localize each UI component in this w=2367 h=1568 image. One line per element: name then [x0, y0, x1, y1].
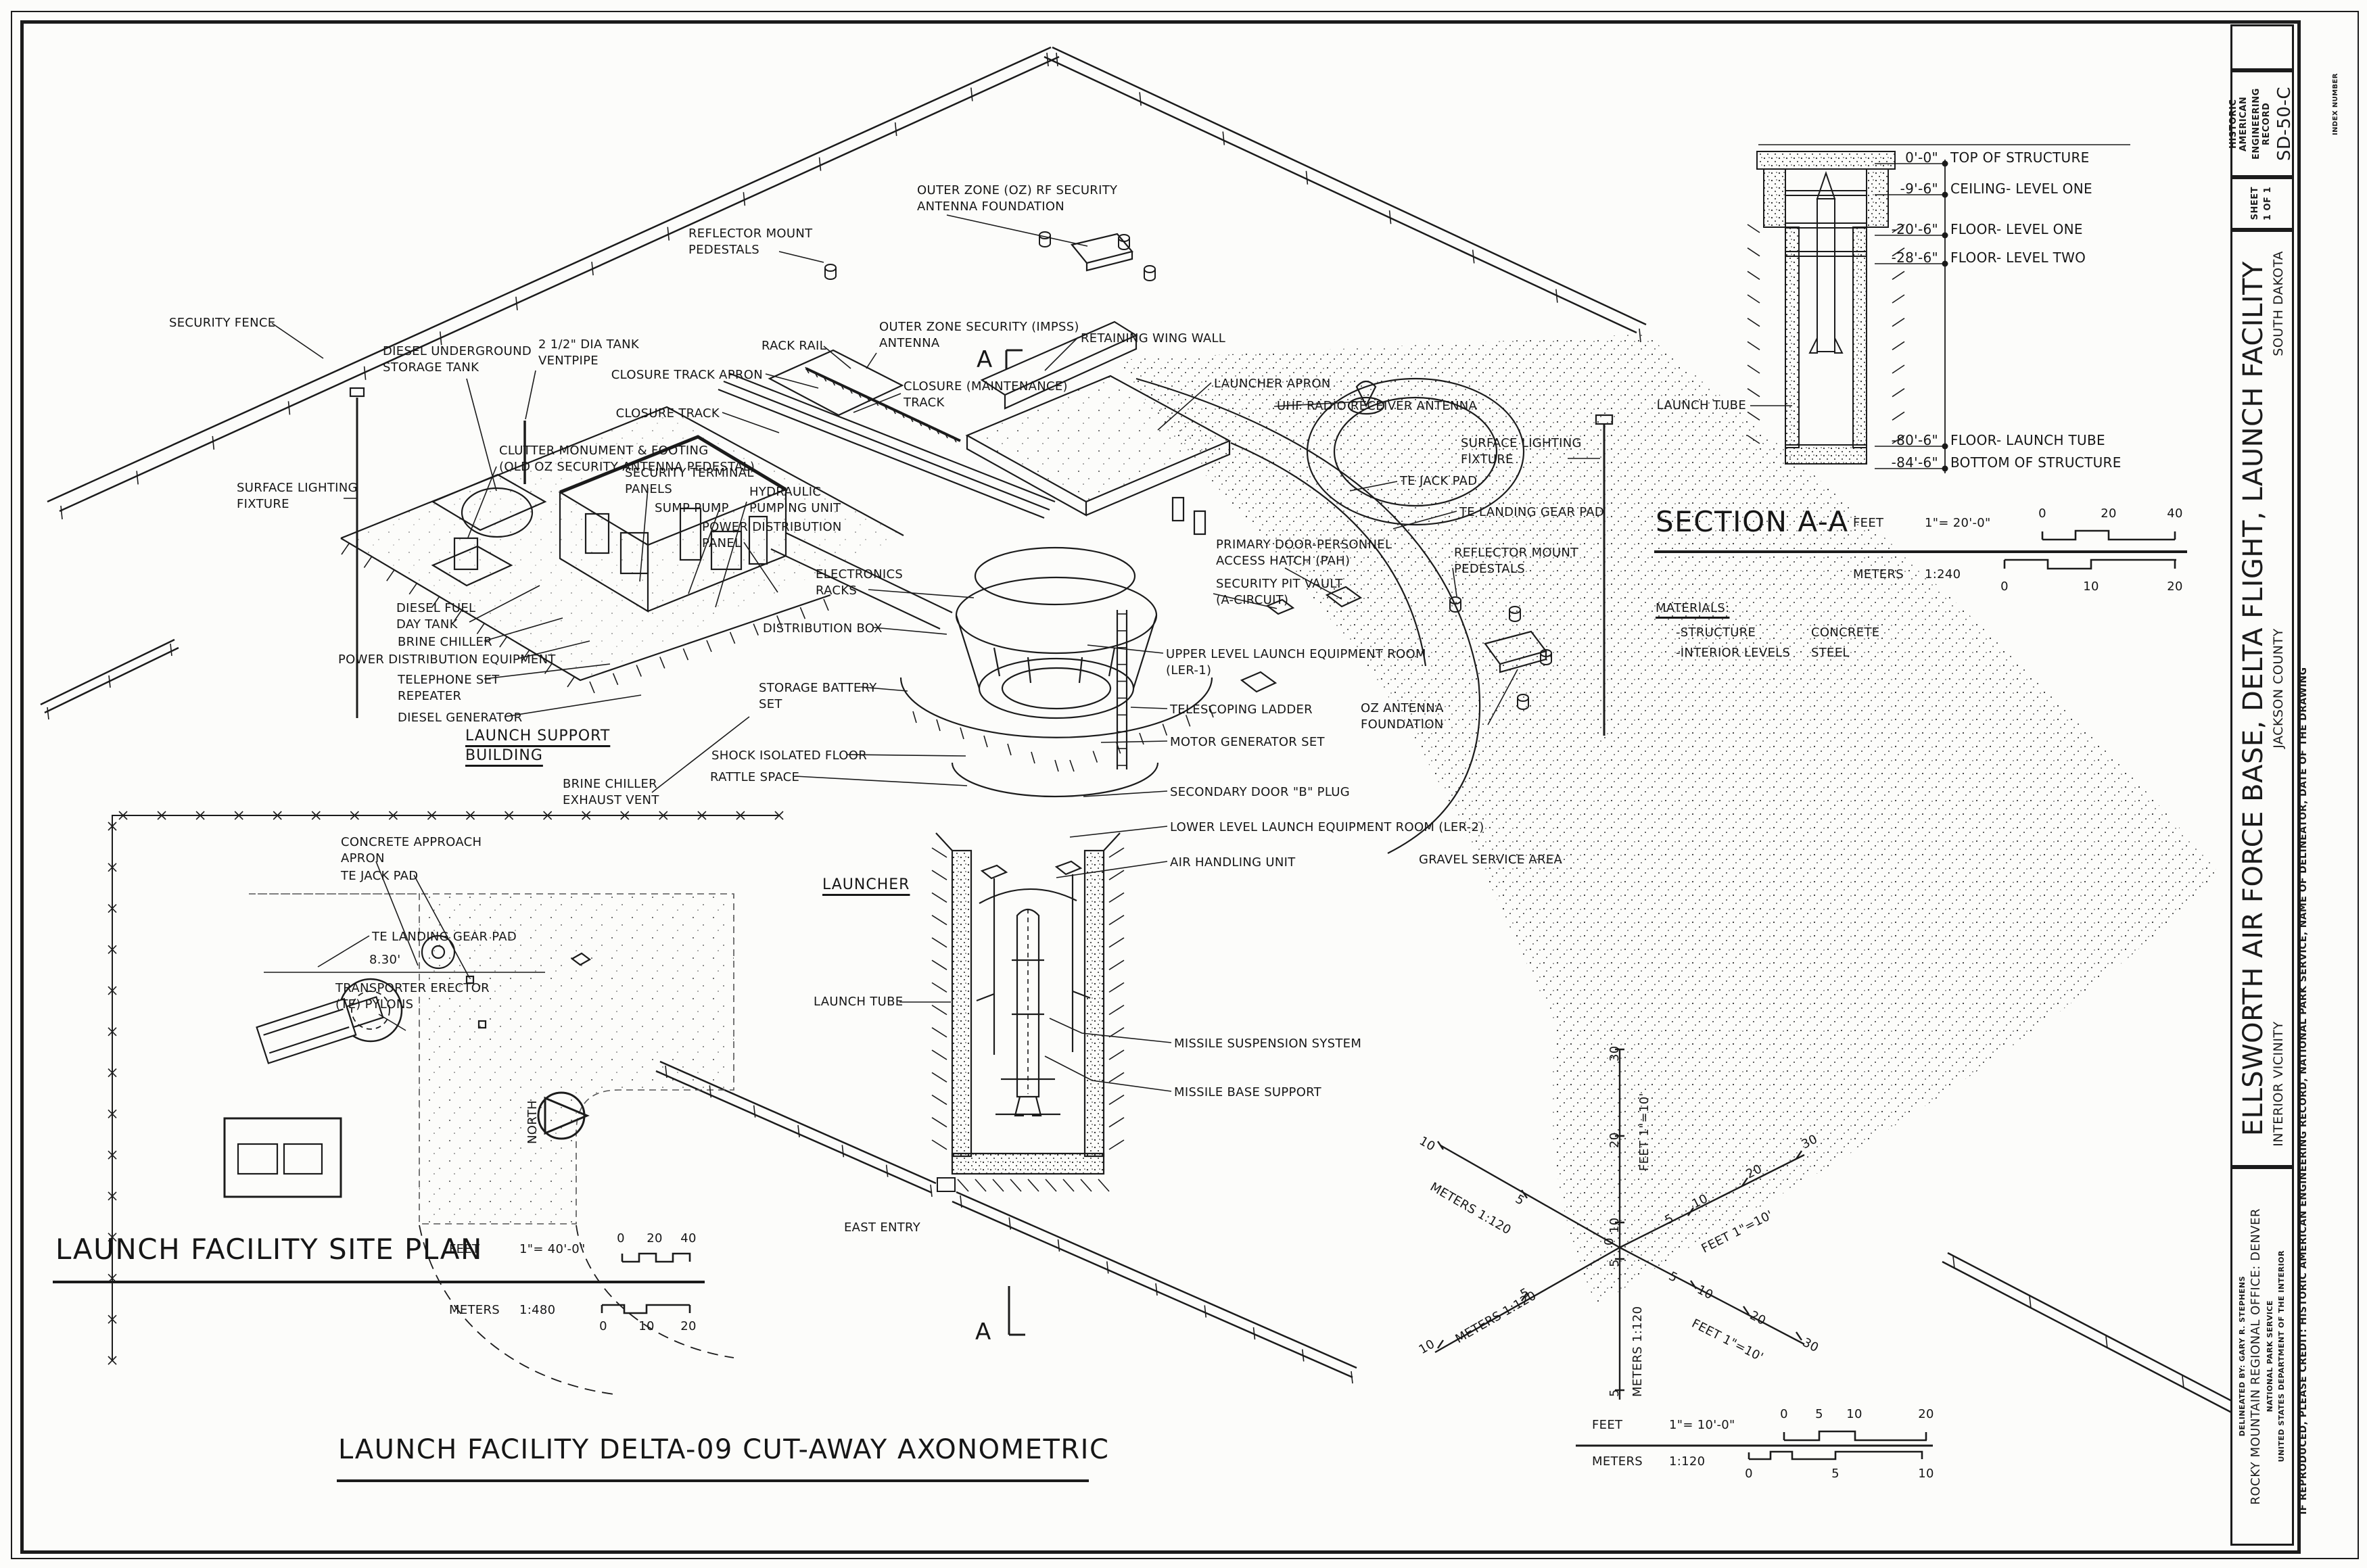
axon-title: LAUNCH FACILITY DELTA-09 CUT-AWAY AXONOM… [338, 1432, 1109, 1468]
telescoping-ladder: TELESCOPING LADDER [1170, 702, 1313, 718]
record-agency-line2: ENGINEERING RECORD [2252, 72, 2272, 175]
brine-chiller: BRINE CHILLER [398, 634, 492, 650]
diesel-underground-tank: DIESEL UNDERGROUND STORAGE TANK [383, 343, 532, 376]
closure-track: CLOSURE TRACK [616, 406, 720, 422]
sp-m10: 10 [638, 1318, 655, 1335]
agency-small: NATIONAL PARK SERVICE [2266, 1300, 2275, 1412]
elev-84-name: BOTTOM OF STRUCTURE [1950, 454, 2122, 471]
oz-antenna-foundation: OZ ANTENNA FOUNDATION [1361, 700, 1444, 733]
missile-suspension: MISSILE SUSPENSION SYSTEM [1174, 1036, 1361, 1052]
materials-title: MATERIALS: [1656, 600, 1729, 617]
sp-f0: 0 [617, 1231, 625, 1247]
oz-rf-foundation: OUTER ZONE (OZ) RF SECURITY ANTENNA FOUN… [917, 183, 1117, 215]
te-jack-site: TE JACK PAD [341, 868, 418, 884]
diesel-day-tank: DIESEL FUEL DAY TANK [396, 600, 475, 633]
star-v5: 5 [1607, 1259, 1623, 1267]
star-v0: 0 [1601, 1237, 1618, 1245]
sec-m20: 20 [2167, 579, 2183, 595]
reflector-mount-right: REFLECTOR MOUNT PEDESTALS [1454, 545, 1578, 577]
launch-support-building-title: LAUNCH SUPPORT BUILDING [465, 726, 610, 765]
delineated-by: DELINEATED BY: GARY R. STEPHENS [2239, 1276, 2247, 1436]
elev-0-dim: 0'-0" [1905, 149, 1938, 166]
elev-0-name: TOP OF STRUCTURE [1950, 149, 2090, 166]
reproduction-credit: IF REPRODUCED, PLEASE CREDIT: HISTORIC A… [2298, 122, 2309, 1515]
record-agency-line1: HISTORIC AMERICAN [2229, 72, 2249, 175]
launch-tube-axon: LAUNCH TUBE [814, 994, 903, 1010]
materials-structure: -STRUCTURE [1676, 625, 1756, 641]
sp-f20: 20 [647, 1231, 663, 1247]
section-mark-top: A [977, 345, 993, 375]
elev-84-dim: -84'-6" [1892, 454, 1938, 471]
elev-9-dim: -9'-6" [1900, 180, 1938, 197]
security-pit-vault: SECURITY PIT VAULT (A-CIRCUIT) [1216, 576, 1343, 609]
sp-m0: 0 [599, 1318, 607, 1335]
sump-pump: SUMP PUMP [655, 500, 729, 517]
bt-f5: 5 [1815, 1406, 1823, 1423]
te-jack-pad-axon: TE JACK PAD [1400, 473, 1477, 490]
secondary-door-plug: SECONDARY DOOR "B" PLUG [1170, 784, 1350, 801]
bt-meters: METERS [1592, 1454, 1643, 1470]
bt-m0: 0 [1745, 1466, 1753, 1482]
haer-drawing-sheet: SECURITY FENCEREFLECTOR MOUNT PEDESTALSO… [0, 0, 2367, 1568]
survey-number: SD-50-C [2275, 87, 2295, 161]
elev-28-name: FLOOR- LEVEL TWO [1950, 249, 2086, 266]
missile-base-support: MISSILE BASE SUPPORT [1174, 1085, 1321, 1101]
star-feet-up: FEET 1"=10' [1637, 1093, 1653, 1171]
title-block-sheet-box: SHEET 1 OF 1 [2230, 177, 2294, 230]
security-fence-label: SECURITY FENCE [169, 315, 275, 331]
bt-feet: FEET [1592, 1417, 1622, 1433]
title-block-stamp-box [2230, 24, 2294, 70]
sheet-label: SHEET [2251, 187, 2261, 220]
te-landing-axon: TE LANDING GEAR PAD [1459, 504, 1604, 521]
north-label: NORTH [525, 1100, 541, 1144]
materials-structure-val: CONCRETE [1811, 625, 1879, 641]
sec-meters: METERS [1853, 567, 1904, 583]
gravel-service-area: GRAVEL SERVICE AREA [1419, 852, 1562, 868]
sec-f0: 0 [2038, 506, 2046, 522]
concrete-apron-site: CONCRETE APPROACH APRON [341, 834, 482, 867]
hydraulic-unit: HYDRAULIC PUMPING UNIT [749, 484, 841, 517]
elev-9-name: CEILING- LEVEL ONE [1950, 180, 2092, 197]
bt-f10: 10 [1846, 1406, 1862, 1423]
sp-m20: 20 [680, 1318, 697, 1335]
bt-m10: 10 [1918, 1466, 1934, 1482]
rack-rail: RACK RAIL [761, 338, 826, 354]
surface-lighting-right: SURFACE LIGHTING FIXTURE [1461, 435, 1582, 468]
elev-20-name: FLOOR- LEVEL ONE [1950, 220, 2083, 238]
east-entry: EAST ENTRY [844, 1220, 920, 1236]
diesel-generator: DIESEL GENERATOR [398, 710, 522, 726]
ler2: LOWER LEVEL LAUNCH EQUIPMENT ROOM (LER-2… [1170, 819, 1484, 836]
dept-small: UNITED STATES DEPARTMENT OF THE INTERIOR [2278, 1250, 2287, 1462]
subtitle-county: JACKSON COUNTY [2272, 628, 2287, 748]
brine-exhaust-vent: BRINE CHILLER EXHAUST VENT [563, 776, 659, 809]
sp-meters-eq: 1:480 [519, 1302, 555, 1318]
launcher-title: LAUNCHER [822, 875, 910, 895]
electronics-racks: ELECTRONICS RACKS [816, 567, 903, 599]
sec-feet-eq: 1"= 20'-0" [1925, 515, 1991, 531]
title-block-office-box: DELINEATED BY: GARY R. STEPHENS ROCKY MO… [2230, 1167, 2294, 1546]
drawing-subtitle: INTERIOR VICINITY JACKSON COUNTY SOUTH D… [2272, 251, 2287, 1147]
materials-interior-val: STEEL [1811, 645, 1850, 661]
title-block-title-box: ELLSWORTH AIR FORCE BASE, DELTA FLIGHT, … [2230, 230, 2294, 1167]
title-block: HISTORIC AMERICAN ENGINEERING RECORD SD-… [2230, 24, 2294, 1546]
bt-f0: 0 [1780, 1406, 1788, 1423]
sec-f20: 20 [2101, 506, 2117, 522]
regional-office: ROCKY MOUNTAIN REGIONAL OFFICE: DENVER [2249, 1208, 2264, 1505]
elev-28-dim: -28'-6" [1892, 249, 1938, 266]
transporter-pylons-site: TRANSPORTER ERECTOR (TE) PYLONS [335, 980, 490, 1013]
drawing-title: ELLSWORTH AIR FORCE BASE, DELTA FLIGHT, … [2238, 261, 2269, 1136]
ler1: UPPER LEVEL LAUNCH EQUIPMENT ROOM (LER-1… [1166, 646, 1426, 679]
elev-20-dim: -20'-6" [1892, 220, 1938, 238]
power-dist-equip: POWER DISTRIBUTION EQUIPMENT [338, 652, 556, 668]
bt-m5: 5 [1831, 1466, 1839, 1482]
air-handling-unit: AIR HANDLING UNIT [1170, 855, 1296, 871]
te-landing-site: TE LANDING GEAR PAD [372, 929, 517, 945]
sec-f40: 40 [2167, 506, 2183, 522]
bt-feet-eq: 1"= 10'-0" [1669, 1417, 1735, 1433]
title-block-record-box: HISTORIC AMERICAN ENGINEERING RECORD SD-… [2230, 70, 2294, 177]
ventpipe: 2 1/2" DIA TANK VENTPIPE [538, 337, 639, 369]
sp-meters: METERS [449, 1302, 500, 1318]
rattle-space: RATTLE SPACE [710, 769, 799, 786]
sec-meters-eq: 1:240 [1925, 567, 1961, 583]
section-mark-bottom: A [975, 1317, 991, 1348]
star-v20: 20 [1607, 1132, 1623, 1148]
motor-generator-set: MOTOR GENERATOR SET [1170, 734, 1325, 751]
retaining-wing-wall: RETAINING WING WALL [1081, 331, 1225, 347]
storage-battery-set: STORAGE BATTERY SET [759, 680, 877, 713]
star-d5: 5 [1607, 1389, 1623, 1397]
elev-80-dim: -80'-6" [1892, 431, 1938, 449]
star-meters-down: METERS 1:120 [1630, 1306, 1646, 1397]
uhf-antenna: UHF RADIO RECEIVER ANTENNA [1277, 398, 1477, 414]
section-title: SECTION A-A [1656, 503, 1849, 540]
surface-lighting-left: SURFACE LIGHTING FIXTURE [237, 480, 358, 513]
site-plan-drawing [112, 815, 779, 1394]
bt-meters-eq: 1:120 [1669, 1454, 1705, 1470]
primary-door-pah: PRIMARY DOOR-PERSONNEL ACCESS HATCH (PAH… [1216, 537, 1392, 569]
dim-830: 8.30' [369, 952, 401, 968]
bt-f20: 20 [1918, 1406, 1934, 1423]
launch-tube-section: LAUNCH TUBE [1657, 398, 1746, 414]
sec-m10: 10 [2083, 579, 2099, 595]
sp-f40: 40 [680, 1231, 697, 1247]
subtitle-interior-vicinity: INTERIOR VICINITY [2272, 1021, 2287, 1146]
star-v30: 30 [1607, 1045, 1623, 1062]
launch-tube-drawing [936, 833, 1120, 1174]
telephone-repeater: TELEPHONE SET REPEATER [398, 672, 500, 705]
security-terminal-panels: SECURITY TERMINAL PANELS [625, 465, 754, 498]
index-number-label: INDEX NUMBER [2332, 41, 2339, 135]
sp-feet: FEET [449, 1241, 479, 1258]
sheet-number: 1 OF 1 [2264, 187, 2274, 220]
shock-isolated-floor: SHOCK ISOLATED FLOOR [711, 748, 867, 764]
closure-maint-track: CLOSURE (MAINTENANCE) TRACK [904, 379, 1068, 411]
subtitle-state: SOUTH DAKOTA [2272, 251, 2287, 356]
closure-track-apron: CLOSURE TRACK APRON [611, 367, 763, 383]
power-dist-panel: POWER DISTRIBUTION PANEL [702, 519, 842, 552]
reflector-mount-top: REFLECTOR MOUNT PEDESTALS [688, 226, 812, 258]
distribution-box: DISTRIBUTION BOX [763, 621, 883, 637]
sec-feet: FEET [1853, 515, 1883, 531]
site-plan-title: LAUNCH FACILITY SITE PLAN [55, 1231, 483, 1268]
sp-feet-eq: 1"= 40'-0" [519, 1241, 586, 1258]
east-gate [937, 1178, 955, 1191]
star-v10: 10 [1607, 1217, 1623, 1233]
elev-80-name: FLOOR- LAUNCH TUBE [1950, 431, 2105, 449]
launcher-apron: LAUNCHER APRON [1214, 376, 1331, 392]
sec-m0: 0 [2000, 579, 2009, 595]
materials-interior: -INTERIOR LEVELS [1676, 645, 1790, 661]
